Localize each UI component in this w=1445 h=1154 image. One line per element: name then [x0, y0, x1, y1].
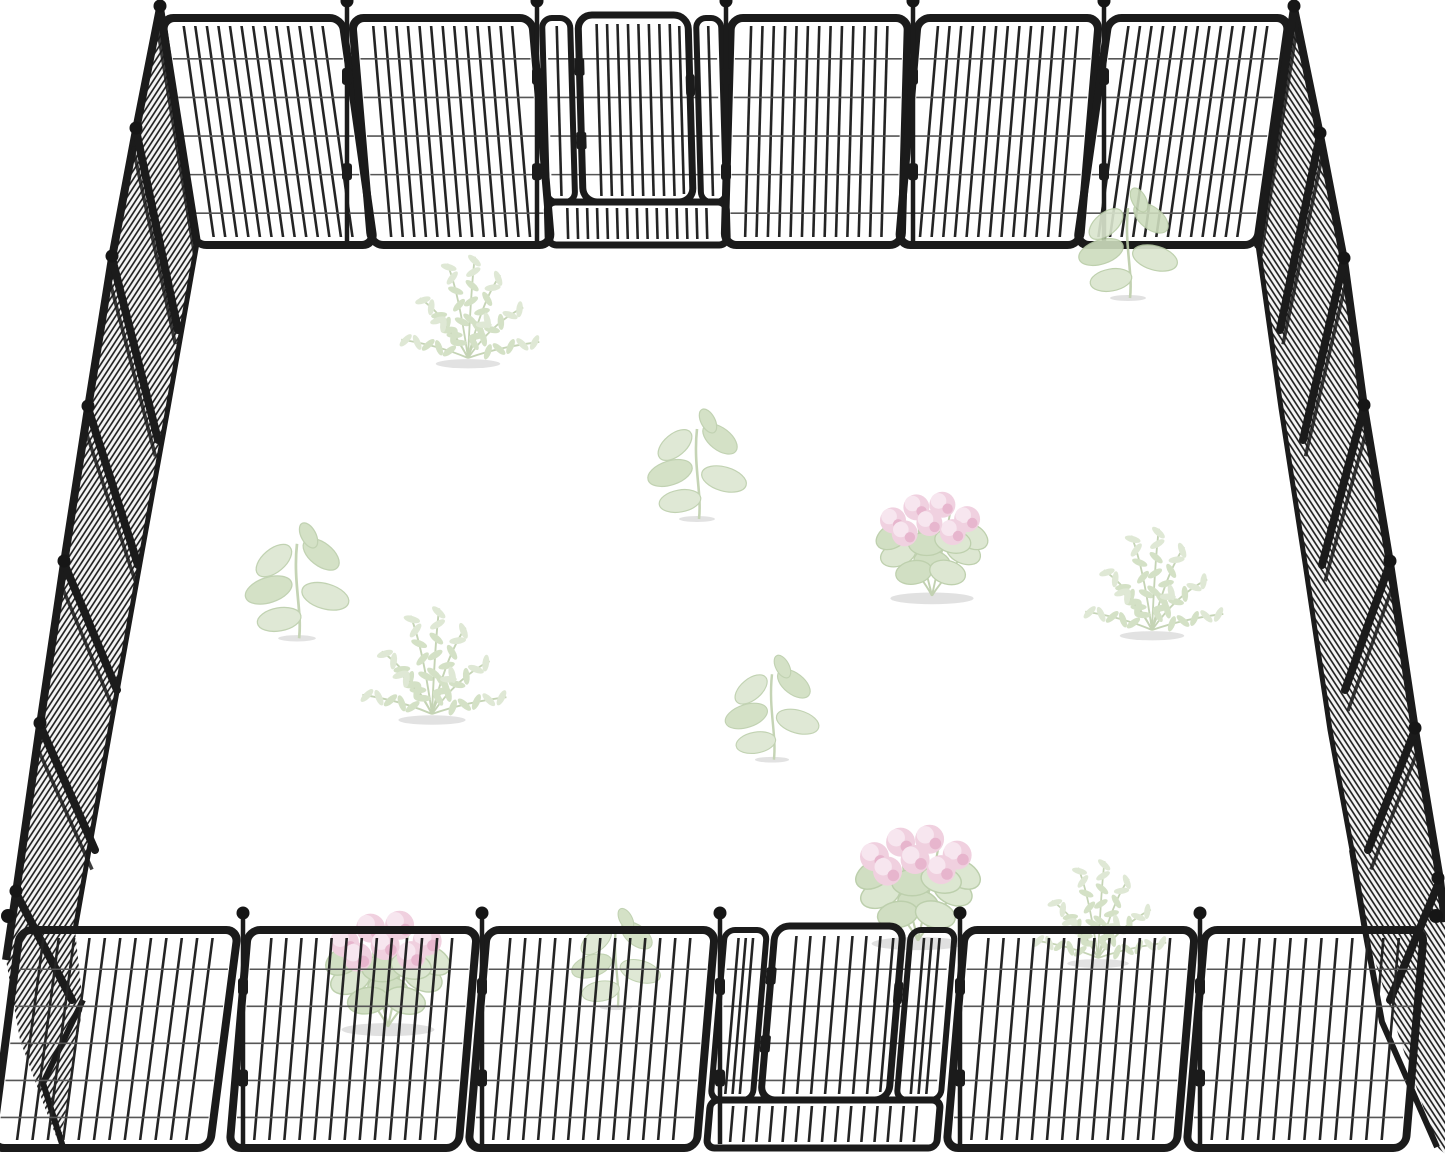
door-latch: [686, 73, 696, 97]
front-wall: [0, 907, 1443, 1149]
ball-finial: [1314, 127, 1327, 140]
plant-sprout: [722, 653, 822, 763]
plant-zz: [398, 253, 541, 369]
ball-finial: [1432, 872, 1445, 885]
ball-finial: [1098, 0, 1111, 8]
ball-finial: [1358, 399, 1371, 412]
left-wall: [6, 0, 197, 1147]
door-hinge: [765, 967, 776, 984]
ball-finial: [130, 122, 143, 135]
ball-finial: [1409, 722, 1422, 735]
ball-finial: [1384, 555, 1397, 568]
plants: [242, 185, 1225, 1036]
corner-ball-finial: [1429, 909, 1443, 923]
plant-pink: [871, 492, 992, 604]
playpen-scene: Black metal heavy-duty pet playpen fence…: [0, 0, 1445, 1154]
ball-finial: [720, 0, 733, 8]
ball-finial: [714, 907, 727, 920]
ball-finial: [1194, 907, 1207, 920]
ball-finial: [10, 885, 23, 898]
fence-panel: [352, 18, 551, 245]
ball-finial: [954, 907, 967, 920]
back-wall: [162, 0, 1289, 245]
ball-finial: [1338, 252, 1351, 265]
plant-zz: [359, 604, 509, 725]
ball-finial: [907, 0, 920, 8]
ball-finial: [476, 907, 489, 920]
product-image: Black metal heavy-duty pet playpen fence…: [0, 0, 1445, 1154]
ball-finial: [341, 0, 354, 8]
gate-panel: [542, 15, 727, 245]
ball-finial: [1288, 0, 1301, 13]
ball-finial: [58, 555, 71, 568]
ball-finial: [237, 907, 250, 920]
ball-finial: [154, 0, 167, 13]
plant-sprout: [644, 406, 749, 522]
gate-door: [756, 926, 909, 1100]
plant-sprout: [242, 520, 352, 642]
plant-zz: [1082, 525, 1225, 641]
corner-ball-finial: [1, 909, 15, 923]
ball-finial: [34, 717, 47, 730]
fence-panel: [899, 18, 1099, 245]
door-hinge: [760, 1035, 771, 1052]
gate-panel: [706, 926, 955, 1148]
ball-finial: [82, 400, 95, 413]
side-wall-mesh: [6, 8, 197, 1146]
door-hinge: [576, 132, 586, 149]
ball-finial: [531, 0, 544, 8]
plant-zz: [1031, 857, 1168, 967]
door-hinge: [574, 58, 584, 75]
ball-finial: [106, 250, 119, 263]
fence-panel: [725, 18, 908, 245]
